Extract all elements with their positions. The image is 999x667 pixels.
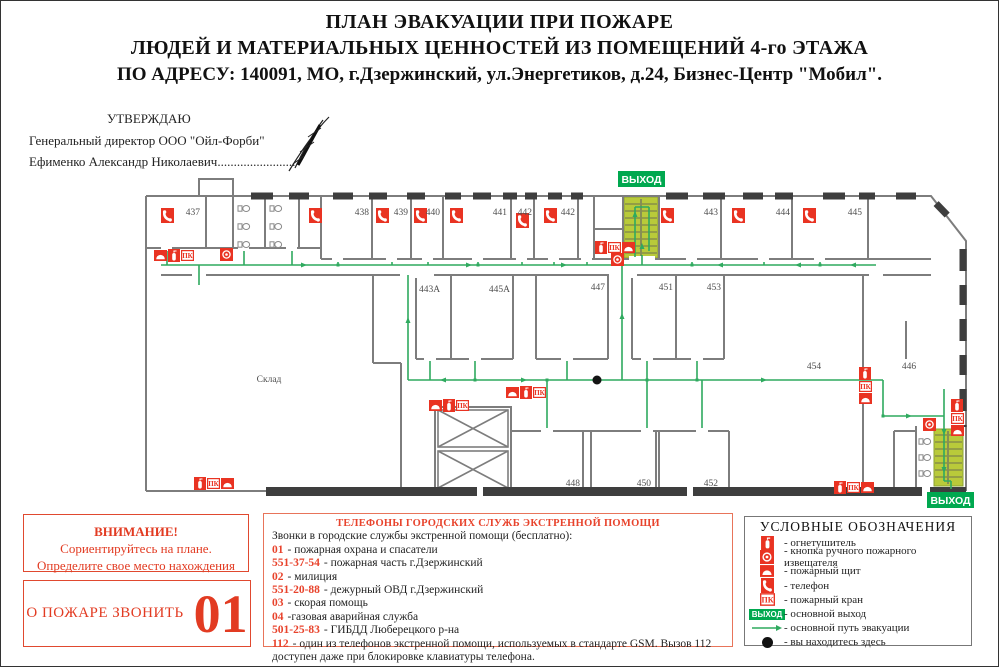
toilet-icon (919, 471, 931, 477)
legend-row: - кнопка ручного пожарного извещателя (750, 550, 966, 564)
fire-shield-icon (506, 387, 519, 398)
room-label: 441 (493, 208, 508, 218)
legend-title: УСЛОВНЫЕ ОБОЗНАЧЕНИЯ (750, 519, 966, 535)
room-label: 442 (561, 208, 576, 218)
fire-shield-icon (429, 400, 442, 411)
wc-fixtures (238, 206, 931, 477)
fire-hydrant-pk-icon (609, 243, 621, 253)
legend-label: - основной выход (784, 608, 866, 620)
svg-text:ВЫХОД: ВЫХОД (621, 174, 662, 186)
phones-intro: Звонки в городские службы экстренной пом… (272, 530, 724, 543)
elevator-shaft (438, 410, 508, 488)
title-line-3: ПО АДРЕСУ: 140091, МО, г.Дзержинский, ул… (1, 64, 998, 86)
phone-row: 02- милиция (272, 571, 724, 584)
fire-shield-icon (622, 242, 635, 253)
attention-line-2: Определите свое место нахождения (24, 557, 248, 574)
fire-shield-icon (861, 482, 874, 493)
evacuation-route (161, 207, 951, 489)
legend-label: - пожарный кран (784, 594, 863, 606)
toilet-icon (238, 206, 250, 212)
telephone-icon (161, 208, 174, 223)
title-line-1: ПЛАН ЭВАКУАЦИИ ПРИ ПОЖАРЕ (1, 11, 998, 34)
floor-plan: ПК (1, 161, 998, 511)
telephone-icon (309, 208, 322, 223)
fire-call-label: О ПОЖАРЕ ЗВОНИТЬ (26, 605, 183, 622)
legend-box: УСЛОВНЫЕ ОБОЗНАЧЕНИЯ - огнетушитель - кн… (744, 516, 972, 646)
phone-desc: - пожарная часть г.Дзержинский (324, 557, 483, 569)
phone-number: 02 (272, 571, 284, 583)
fire-shield-icon (750, 565, 784, 577)
room-label: 447 (591, 283, 606, 293)
telephone-icon (544, 208, 557, 223)
fire-shield-icon (859, 393, 872, 404)
fire-equipment (154, 241, 964, 494)
phone-desc: - скорая помощь (288, 597, 368, 609)
telephone-icon (732, 208, 745, 223)
legend-label: - телефон (784, 580, 829, 592)
manual-call-point-icon (750, 550, 784, 564)
telephone-icon (450, 208, 463, 223)
phone-desc: - дежурный ОВД г.Дзержинский (324, 584, 483, 596)
toilet-icon (270, 242, 282, 248)
fire-hydrant-pk-icon (457, 401, 469, 411)
legend-row: ВЫХОД - основной выход (750, 607, 966, 621)
room-label: 440 (426, 208, 441, 218)
fire-extinguisher-icon (595, 241, 607, 254)
fire-extinguisher-icon (443, 399, 455, 412)
phone-desc: - ГИБДД Люберецкого р-на (324, 624, 459, 636)
phone-row: 01- пожарная охрана и спасатели (272, 544, 724, 557)
evacuation-plan-poster: ПЛАН ЭВАКУАЦИИ ПРИ ПОЖАРЕ ЛЮДЕЙ И МАТЕРИ… (0, 0, 999, 667)
evacuation-route-icon (750, 623, 784, 633)
legend-label: - вы находитесь здесь (784, 636, 886, 648)
exit-sign-top: ВЫХОД (618, 171, 665, 187)
room-label: 453 (707, 283, 722, 293)
fire-hydrant-pk-icon (534, 388, 546, 398)
toilet-icon (238, 224, 250, 230)
room-label: 452 (704, 479, 719, 489)
phone-desc: - милиция (288, 571, 338, 583)
room-label: 445А (489, 285, 510, 295)
fire-extinguisher-icon (194, 477, 206, 490)
manual-call-point-icon (923, 418, 936, 431)
fire-extinguisher-icon (951, 399, 963, 412)
manual-call-point-icon (220, 248, 233, 261)
phone-row: 04-газовая аварийная служба (272, 611, 724, 624)
phone-desc: -газовая аварийная служба (288, 611, 419, 623)
manual-call-point-icon (611, 253, 624, 266)
phone-number: 04 (272, 611, 284, 623)
attention-title: ВНИМАНИЕ! (24, 523, 248, 540)
room-label: 451 (659, 283, 674, 293)
fire-extinguisher-icon (750, 536, 784, 550)
room-label: 443 (704, 208, 719, 218)
fire-extinguisher-icon (520, 386, 532, 399)
phone-number: 551-20-88 (272, 584, 320, 596)
phone-row: 551-37-54- пожарная часть г.Дзержинский (272, 557, 724, 570)
fire-extinguisher-icon (168, 249, 180, 262)
room-label: 448 (566, 479, 581, 489)
stairwell-bottom (934, 429, 963, 486)
fire-hydrant-pk-icon (182, 251, 194, 261)
toilet-icon (919, 455, 931, 461)
main-exit-icon: ВЫХОД (750, 609, 784, 620)
room-label: 438 (355, 208, 370, 218)
toilet-icon (919, 439, 931, 445)
phone-row: 112- один из телефонов экстренной помощи… (272, 638, 724, 665)
you-are-here-icon (750, 637, 784, 648)
telephone-icon (661, 208, 674, 223)
room-label: 450 (637, 479, 652, 489)
fire-call-box: О ПОЖАРЕ ЗВОНИТЬ 01 (23, 580, 251, 647)
telephone-icon (376, 208, 389, 223)
exit-sign-bottom: ВЫХОД (927, 492, 974, 508)
room-label: 443А (419, 285, 440, 295)
telephone-icon (803, 208, 816, 223)
page-title: ПЛАН ЭВАКУАЦИИ ПРИ ПОЖАРЕ ЛЮДЕЙ И МАТЕРИ… (1, 11, 998, 86)
warehouse-label: Склад (257, 375, 282, 385)
room-label: 446 (902, 362, 917, 372)
legend-row: - телефон (750, 579, 966, 593)
legend-label: - основной путь эвакуации (784, 622, 909, 634)
phone-row: 501-25-83- ГИБДД Люберецкого р-на (272, 624, 724, 637)
phone-number: 551-37-54 (272, 557, 320, 569)
title-line-2: ЛЮДЕЙ И МАТЕРИАЛЬНЫХ ЦЕННОСТЕЙ ИЗ ПОМЕЩЕ… (1, 37, 998, 60)
fire-hydrant-pk-icon (860, 382, 872, 392)
emergency-phones-box: ТЕЛЕФОНЫ ГОРОДСКИХ СЛУЖБ ЭКСТРЕННОЙ ПОМО… (263, 513, 733, 647)
fire-hydrant-pk-icon (952, 414, 964, 424)
legend-row: - основной путь эвакуации (750, 621, 966, 635)
fire-call-number: 01 (194, 587, 248, 641)
walls (146, 179, 966, 491)
fire-hydrant-pk-icon (208, 479, 220, 489)
room-label: 439 (394, 208, 409, 218)
phone-number: 01 (272, 544, 284, 556)
door-gaps (161, 245, 883, 434)
phone-number: 112 (272, 638, 289, 650)
toilet-icon (270, 206, 282, 212)
fire-extinguisher-icon (859, 367, 871, 380)
phones-title: ТЕЛЕФОНЫ ГОРОДСКИХ СЛУЖБ ЭКСТРЕННОЙ ПОМО… (272, 517, 724, 530)
phone-desc: - один из телефонов экстренной помощи, и… (272, 638, 711, 663)
toilet-icon (238, 242, 250, 248)
legend-row: - пожарный кран (750, 593, 966, 607)
attention-line-1: Сориентируйтесь на плане. (24, 540, 248, 557)
fire-hydrant-pk-icon (750, 593, 784, 606)
fire-shield-icon (951, 425, 964, 436)
legend-label: - пожарный щит (784, 565, 861, 577)
room-label: 437 (186, 208, 201, 218)
svg-text:ВЫХОД: ВЫХОД (930, 495, 971, 507)
phone-number: 03 (272, 597, 284, 609)
phone-row: 551-20-88- дежурный ОВД г.Дзержинский (272, 584, 724, 597)
fire-shield-icon (154, 250, 167, 261)
room-label: 445 (848, 208, 863, 218)
toilet-icon (270, 224, 282, 230)
telephone-icon (750, 578, 784, 593)
phone-desc: - пожарная охрана и спасатели (288, 544, 438, 556)
you-are-here-dot (593, 376, 602, 385)
room-label: 454 (807, 362, 822, 372)
room-label: 444 (776, 208, 791, 218)
fire-shield-icon (221, 478, 234, 489)
fire-extinguisher-icon (834, 481, 846, 494)
room-label: 442 (518, 208, 533, 218)
phone-row: 03- скорая помощь (272, 597, 724, 610)
legend-row: - вы находитесь здесь (750, 635, 966, 649)
attention-box: ВНИМАНИЕ! Сориентируйтесь на плане. Опре… (23, 514, 249, 572)
fire-hydrant-pk-icon (848, 483, 860, 493)
phone-number: 501-25-83 (272, 624, 320, 636)
